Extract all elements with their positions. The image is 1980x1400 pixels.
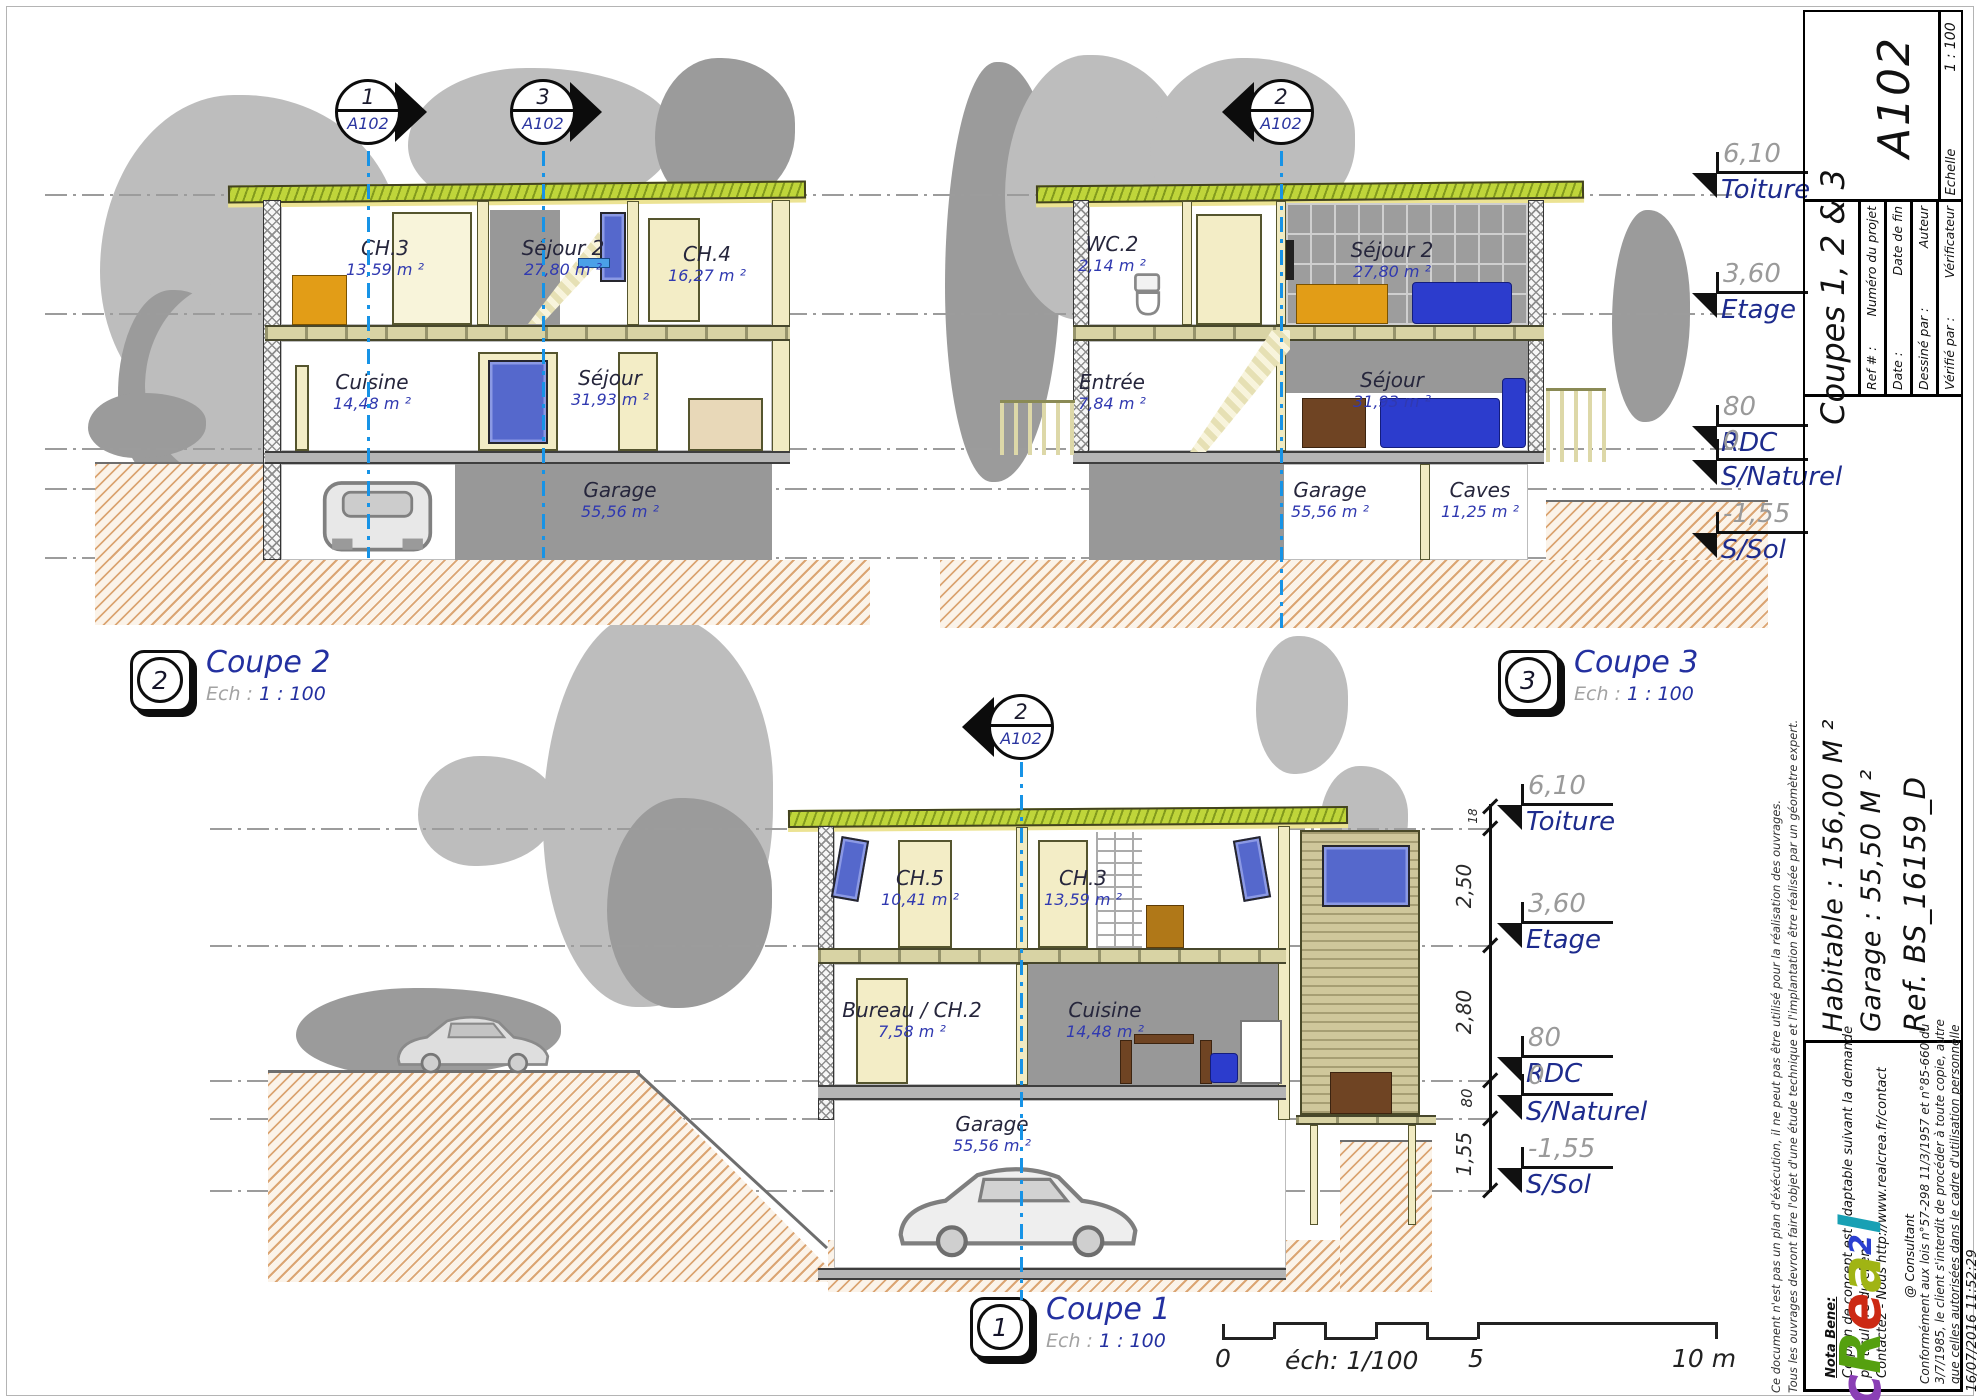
scalebar-end-tick: [1715, 1322, 1718, 1339]
sofa: [1412, 282, 1512, 324]
exterior-wall: [818, 826, 834, 1120]
ground-hatch: [95, 560, 870, 625]
sink-unit: [1240, 1020, 1282, 1084]
dimension-text: 2,50: [1452, 846, 1476, 926]
scalebar-step: [1375, 1322, 1378, 1339]
sheet-title: Coupes 1, 2 & 3: [1806, 204, 1860, 390]
basement-wall: [1420, 464, 1430, 560]
room-label: CH.313,59 m ²: [346, 236, 424, 279]
section-marker-3-icon: 3 A102: [510, 79, 576, 145]
drawing-sheet: 1 A102 3 A102 CH.313,59 m ² Séjour 227,8…: [0, 0, 1980, 1400]
scalebar-step: [1324, 1322, 1327, 1339]
scalebar-step: [1426, 1322, 1429, 1339]
scalebar-segment: [1375, 1322, 1426, 1325]
floor-slab: [818, 948, 1286, 964]
room-label: Caves11,25 m ²: [1441, 478, 1519, 521]
bay-window: [1322, 845, 1410, 907]
sofa: [1502, 378, 1526, 448]
section-marker-1-icon: 1 A102: [335, 79, 401, 145]
section-marker-2-icon: 2 A102: [1248, 79, 1314, 145]
room-label: Garage55,56 m ²: [1291, 478, 1369, 521]
dimension-text: 2,80: [1452, 972, 1476, 1052]
level-marker-snaturel: 0S/Naturel: [1692, 426, 1810, 498]
logo-consultant-text: @ Consultant: [1902, 1198, 1917, 1298]
timestamp: 16/07/2016 11:52:29: [1964, 1222, 1979, 1392]
scalebar-segment: [1426, 1337, 1477, 1340]
deck-post: [1310, 1125, 1318, 1225]
cabinet: [1146, 905, 1184, 948]
coupe1-view-title: Coupe 1 Ech : 1 : 100: [1046, 1292, 1170, 1352]
level-marker-etage: 3,60Etage: [1497, 889, 1615, 961]
room-label: Cuisine14,48 m ²: [333, 370, 411, 413]
scalebar-ten: 10 m: [1672, 1344, 1736, 1373]
room-label: CH.510,41 m ²: [881, 866, 959, 909]
reference-number: Ref. BS_16159_D: [1894, 472, 1936, 1032]
ground-hatch: [940, 560, 1768, 628]
coupe3-view-title: Coupe 3 Ech : 1 : 100: [1574, 645, 1698, 705]
field-project-number: Ref # :Numéro du projet: [1859, 203, 1883, 393]
deck-post: [1408, 1125, 1416, 1225]
car-icon: [310, 470, 445, 558]
section-sheet: A102: [988, 729, 1054, 748]
section-cut-line-1: [367, 118, 370, 558]
scalebar-segment: [1477, 1322, 1717, 1325]
room-label: Séjour31,93 m ²: [571, 366, 649, 409]
door: [1196, 214, 1262, 325]
room-label: Cuisine14,48 m ²: [1066, 998, 1144, 1041]
room-label: WC.22,14 m ²: [1078, 232, 1146, 275]
floor-slab: [265, 325, 790, 341]
room-label: CH.416,27 m ²: [668, 242, 746, 285]
glazed-door-glass: [488, 360, 548, 444]
floor-slab: [1073, 325, 1544, 341]
floor-slab: [265, 451, 790, 464]
section-sheet: A102: [1248, 114, 1314, 133]
ground-hatch: [1340, 1140, 1432, 1292]
level-marker-toiture: 6,10Toiture: [1692, 139, 1810, 211]
basement-earth-side: [1089, 464, 1284, 560]
scalebar-segment: [1222, 1337, 1273, 1340]
cabinet: [295, 365, 309, 451]
scalebar-scale-text: éch: 1/100: [1285, 1346, 1418, 1375]
deck-railing: [1000, 400, 1075, 455]
scale-label: Echelle: [1941, 146, 1961, 198]
level-marker-snaturel: 0S/Naturel: [1497, 1061, 1615, 1133]
garage-area: Garage : 55,50 M ²: [1852, 472, 1890, 1032]
section-number: 2: [988, 700, 1054, 724]
dresser: [688, 398, 763, 451]
scalebar-segment: [1324, 1337, 1375, 1340]
room-label: Garage55,56 m ²: [581, 478, 659, 521]
partition-wall: [1182, 201, 1192, 325]
section-number: 2: [1248, 85, 1314, 109]
scalebar-step: [1477, 1322, 1480, 1339]
dimension-chain-line: [1489, 804, 1492, 1192]
scalebar-five: 5: [1468, 1344, 1484, 1373]
sheet-number: A102: [1868, 14, 1920, 180]
section-sheet: A102: [335, 114, 401, 133]
section-marker-2-icon: 2 A102: [988, 694, 1054, 760]
field-checker: Vérifié par :Vérificateur: [1937, 203, 1961, 393]
room-label: Bureau / CH.27,58 m ²: [842, 998, 981, 1041]
legal-text: Conformément aux lois n°57-298 11/3/1957…: [1918, 1048, 1958, 1384]
scalebar-zero: 0: [1215, 1344, 1231, 1373]
car-icon: [890, 1146, 1146, 1264]
partition-wall: [477, 201, 489, 325]
section-cut-line-2: [1020, 762, 1023, 1300]
floor-slab: [818, 1085, 1286, 1100]
dimension-text: 1,55: [1452, 1116, 1476, 1192]
exterior-wall: [263, 200, 281, 560]
level-marker-etage: 3,60Etage: [1692, 259, 1810, 331]
floor-slab: [1073, 451, 1544, 464]
partition-wall: [627, 201, 639, 325]
room-label: CH.313,59 m ²: [1044, 866, 1122, 909]
dining-set: [1296, 284, 1388, 324]
level-marker-ssol: -1,55S/Sol: [1497, 1134, 1615, 1206]
field-author: Dessiné par :Auteur: [1911, 203, 1935, 393]
toilet-icon: [1130, 272, 1166, 324]
blue-bin: [1210, 1053, 1238, 1083]
room-label: Entrée7,84 m ²: [1078, 370, 1146, 413]
room-label: Séjour 227,80 m ²: [1351, 238, 1434, 281]
section-cut-line-2: [1280, 118, 1283, 630]
kitchen-chair: [1120, 1040, 1132, 1084]
level-marker-toiture: 6,10Toiture: [1497, 771, 1615, 843]
coupe2-view-title: Coupe 2 Ech : 1 : 100: [206, 645, 330, 705]
terrace-deck: [1296, 1115, 1436, 1125]
room-label: Séjour31,93 m ²: [1353, 368, 1431, 411]
scalebar-step: [1273, 1322, 1276, 1339]
coupe1-view-icon: 1: [970, 1297, 1032, 1359]
scale-value: 1 : 100: [1941, 14, 1961, 80]
section-cut-line-3: [542, 118, 545, 558]
scalebar-segment: [1273, 1322, 1324, 1325]
desk: [292, 275, 347, 325]
car-icon: [378, 1006, 568, 1074]
terrace-table: [1330, 1072, 1392, 1114]
section-number: 3: [510, 85, 576, 109]
deck-railing: [1546, 388, 1606, 462]
level-marker-ssol: -1,55S/Sol: [1692, 499, 1810, 571]
section-number: 1: [335, 85, 401, 109]
coupe2-view-icon: 2: [130, 650, 192, 712]
tv-screen: [1286, 240, 1294, 280]
habitable-area: Habitable : 156,00 M ²: [1814, 472, 1852, 1032]
base-slab: [818, 1268, 1286, 1280]
disclaimer-text: Ce document n'est pas un plan d'éxécutio…: [1768, 923, 1802, 1393]
room-label: Séjour 227,80 m ²: [522, 236, 605, 279]
field-date: Date :Date de fin: [1885, 203, 1909, 393]
section-sheet: A102: [510, 114, 576, 133]
coupe3-view-icon: 3: [1498, 650, 1560, 712]
scalebar-end-tick: [1222, 1324, 1225, 1339]
